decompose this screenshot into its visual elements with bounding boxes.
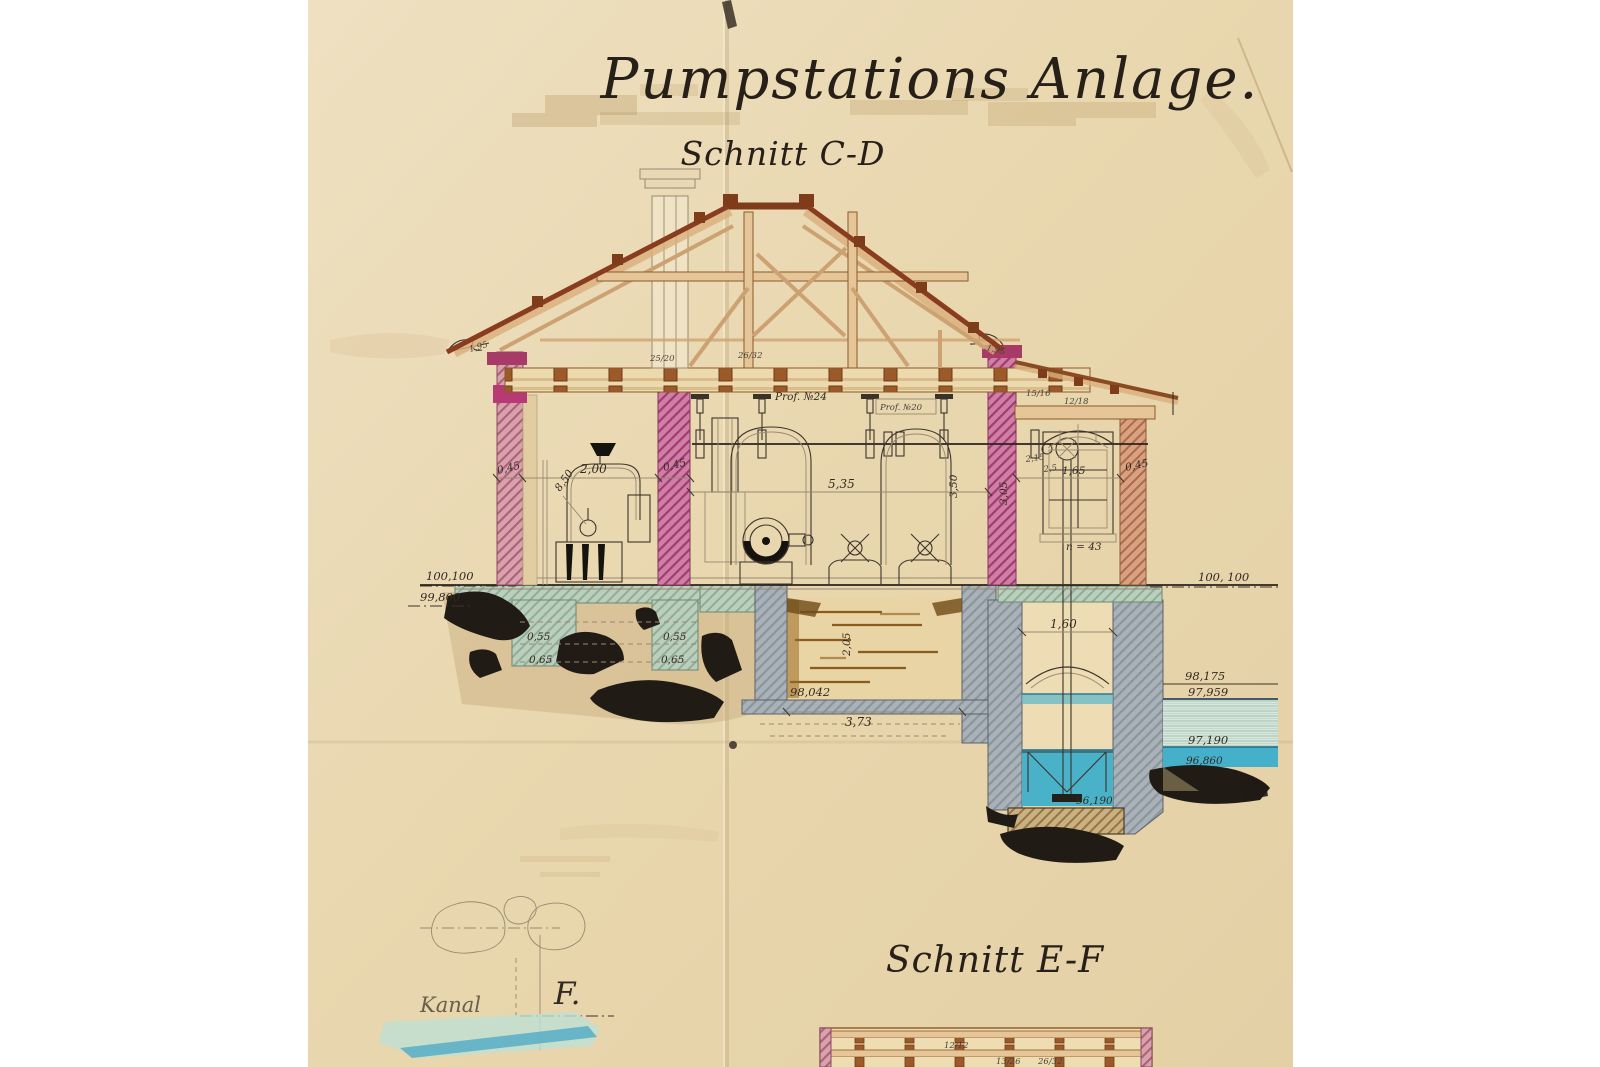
ceiling-joists xyxy=(505,368,1090,392)
mark-ef-c: 26/32 xyxy=(1037,1057,1063,1067)
mark-leanto-b: 12/18 xyxy=(1064,397,1089,407)
dim-annex-height: 3,05 xyxy=(998,481,1010,505)
level-pit-floor: 98,042 xyxy=(790,685,830,699)
level-water-low: 97,190 xyxy=(1188,733,1228,747)
level-ground-right: 100, 100 xyxy=(1198,570,1249,584)
scanned-plan-page: 0,55 0,65 0,55 0,65 98,042 3,73 2,05 1,6… xyxy=(0,0,1600,1067)
dim-hall-width: 5,35 xyxy=(828,477,855,491)
label-prof20: Prof. №20 xyxy=(879,403,923,413)
mark-ef-b: 13/26 xyxy=(996,1057,1021,1067)
dim-footing-left-b: 0,65 xyxy=(529,654,553,666)
f-mark: F. xyxy=(553,976,581,1012)
mark-leanto-a: 15/16 xyxy=(1026,389,1051,399)
annex-outer-wall xyxy=(1120,412,1146,585)
dim-pit-depth: 2,05 xyxy=(841,632,853,657)
mark-ceiling-a: 25/20 xyxy=(649,354,675,364)
level-well-floor: 96,190 xyxy=(1076,795,1113,807)
dim-window-width: 1,65 xyxy=(1062,465,1086,477)
dim-pit-width: 3,73 xyxy=(845,715,872,729)
dim-boiler-span: 2,00 xyxy=(579,462,607,476)
annex-ceiling-beam xyxy=(1015,406,1155,419)
page-title: Pumpstations Anlage. xyxy=(600,47,1260,112)
dim-hall-height: 3,50 xyxy=(948,474,960,498)
dim-well-width: 1,60 xyxy=(1050,617,1077,631)
mark-ef-a: 12/12 xyxy=(944,1041,969,1051)
label-prof24: Prof. №24 xyxy=(774,391,827,403)
level-ground-left-lower: 99,800 xyxy=(420,590,460,604)
dim-footing-left-a: 0,55 xyxy=(527,631,551,643)
section-cd-title: Schnitt C-D xyxy=(680,134,885,173)
dim-footing-mid-a: 0,55 xyxy=(663,631,687,643)
dim-annex-mid: 2,5 xyxy=(1042,463,1058,475)
kanal-label: Kanal xyxy=(419,993,481,1017)
level-ground-left: 100,100 xyxy=(426,569,474,583)
interior-column xyxy=(658,390,690,585)
foundation-left: 0,55 0,65 0,55 0,65 xyxy=(442,585,762,724)
level-water-high: 98,175 xyxy=(1185,669,1225,683)
section-ef-title: Schnitt E-F xyxy=(886,940,1105,981)
ef-drawing: 12/12 13/26 26/32 xyxy=(820,1028,1152,1067)
well-shaft: 1,60 96,190 xyxy=(986,545,1163,863)
label-n-panes: n = 43 xyxy=(1066,541,1102,553)
level-water-mid: 97,959 xyxy=(1188,685,1228,699)
dim-footing-mid-b: 0,65 xyxy=(661,654,685,666)
plan-drawing: 0,55 0,65 0,55 0,65 98,042 3,73 2,05 1,6… xyxy=(0,0,1600,1067)
mark-ceiling-b: 26/32 xyxy=(737,351,763,361)
